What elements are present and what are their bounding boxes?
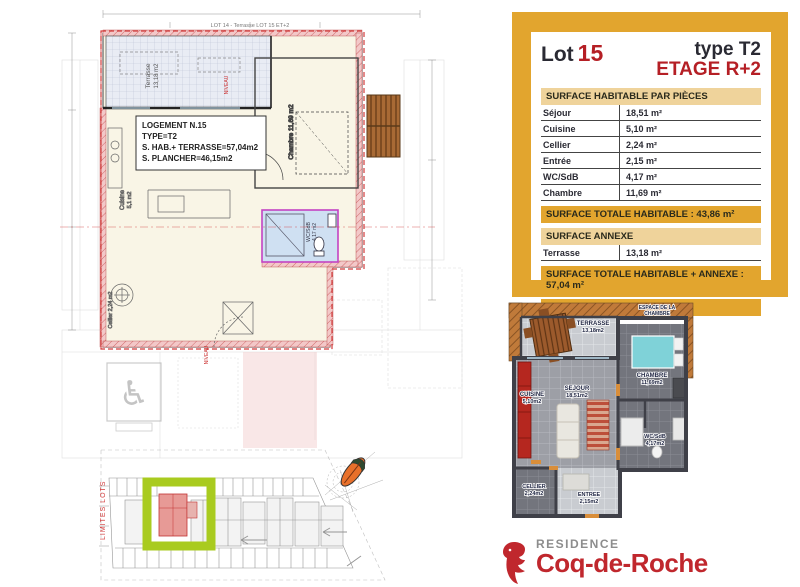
- chambre-name: CHAMBRE: [637, 373, 668, 379]
- red-rug: [587, 400, 609, 450]
- info-line-1: LOGEMENT N.15: [142, 121, 207, 130]
- table-row: Terrasse13,18 m²: [541, 245, 761, 261]
- sejour-name: SEJOUR: [565, 386, 590, 392]
- table-row: Cellier2,24 m²: [541, 137, 761, 153]
- bathroom-area-label: 4,17 m2: [312, 223, 318, 241]
- niveau-label-2: NIVEAU: [204, 345, 210, 364]
- residence-logo: RESIDENCE Coq-de-Roche: [500, 538, 760, 585]
- wardrobe: [673, 378, 685, 398]
- total-habitable-bar: SURFACE TOTALE HABITABLE : 43,86 m²: [541, 206, 761, 223]
- table-row: WC/SdB4,17 m²: [541, 169, 761, 185]
- terrasse-name: TERRASSE: [577, 321, 610, 327]
- lot-label: Lot: [541, 43, 574, 66]
- cellier-label: Cellier 2,24 m2: [108, 292, 114, 329]
- sejour-area: 18,51m2: [566, 393, 588, 399]
- total-hab-annexe-bar: SURFACE TOTALE HABITABLE + ANNEXE : 57,0…: [541, 266, 761, 294]
- wc-area: 4,17m2: [646, 441, 665, 447]
- niveau-label-1: NIVEAU: [224, 75, 230, 94]
- entree-name: ENTREE: [578, 492, 601, 498]
- wheelchair-icon: ♿: [119, 375, 149, 413]
- surface-table-header: SURFACE HABITABLE PAR PIÈCES: [541, 88, 761, 105]
- bed-pillow-2: [674, 354, 683, 366]
- plan-top-note: LOT 14 - Terrasse LOT 15 ET+2: [211, 23, 290, 29]
- kitchen-area-label: 5,1 m2: [127, 192, 133, 209]
- wood-deck: [367, 95, 400, 157]
- rendered-3d-plan: ESPACE DE LA CHAMBRE TERRASSE 13,18m2 CH…: [505, 300, 697, 538]
- terrasse-area: 13,18m2: [582, 328, 604, 334]
- lot-info-card: Lot15 type T2 ETAGE R+2 SURFACE HABITABL…: [531, 32, 771, 280]
- type-label: type T2: [656, 40, 761, 60]
- cellier-name: CELLIER: [522, 484, 546, 490]
- residence-name: Coq-de-Roche: [536, 550, 708, 577]
- info-line-4: S. PLANCHER=46,15m2: [142, 154, 233, 163]
- chambre-area: 11,69m2: [641, 380, 662, 386]
- terrace-label: Terrasse: [145, 63, 152, 88]
- cuisine-area: 5,10m2: [523, 399, 542, 405]
- surface-table: SURFACE HABITABLE PAR PIÈCES Séjour18,51…: [541, 88, 761, 201]
- bathroom-area: WC/SdB 4,17 m2: [262, 210, 338, 262]
- table-row: Séjour18,51 m²: [541, 105, 761, 121]
- sofa: [557, 404, 579, 458]
- bedroom-label: Chambre 11,69 m2: [288, 104, 295, 160]
- annexe-header-bar: SURFACE ANNEXE: [541, 228, 761, 245]
- limites-lots-label: LIMITES LOTS: [100, 481, 107, 540]
- bird-logo-icon: [500, 538, 536, 585]
- band-label-line2: CHAMBRE: [644, 311, 670, 317]
- lot-info-panel: Lot15 type T2 ETAGE R+2 SURFACE HABITABL…: [512, 12, 788, 297]
- site-key-plan: LIMITES LOTS: [95, 440, 390, 587]
- bed-pillow-1: [674, 338, 683, 350]
- info-line-2: TYPE=T2: [142, 132, 177, 141]
- faded-corridor: [243, 352, 317, 448]
- lot-number: 15: [578, 40, 604, 66]
- cellier-area: 2,24m2: [525, 491, 544, 497]
- lot-title: Lot15: [541, 40, 603, 67]
- accessible-bay: ♿: [107, 363, 161, 431]
- cuisine-name: CUISINE: [520, 392, 544, 398]
- shower: [621, 418, 643, 446]
- table-row: Entrée2,15 m²: [541, 153, 761, 169]
- entree-area: 2,15m2: [580, 499, 599, 505]
- table-row: Cuisine5,10 m²: [541, 121, 761, 137]
- compass-north-bird: [325, 452, 383, 512]
- wc-name: WC/SdB: [644, 434, 666, 440]
- terrace-area-label: 13,18 m2: [154, 63, 160, 89]
- toilet: [652, 446, 662, 458]
- terrace-area: Terrasse 13,18 m2: [106, 36, 271, 108]
- kitchen-label: Cuisine: [120, 189, 126, 210]
- kitchen-cabinet: [518, 362, 531, 458]
- info-line-3: S. HAB.+ TERRASSE=57,04m2: [142, 143, 259, 152]
- technical-floor-plan: ♿ LOT 14 - Terrasse LOT 15 ET+2 Terrasse…: [0, 0, 470, 465]
- coffee-table: [563, 474, 589, 490]
- etage-label: ETAGE R+2: [656, 60, 761, 80]
- table-row: Chambre11,69 m²: [541, 185, 761, 201]
- bed: [632, 336, 674, 368]
- unit-info-box: LOGEMENT N.15 TYPE=T2 S. HAB.+ TERRASSE=…: [136, 116, 266, 170]
- vanity: [673, 418, 685, 440]
- apartment-blocks: [125, 498, 343, 546]
